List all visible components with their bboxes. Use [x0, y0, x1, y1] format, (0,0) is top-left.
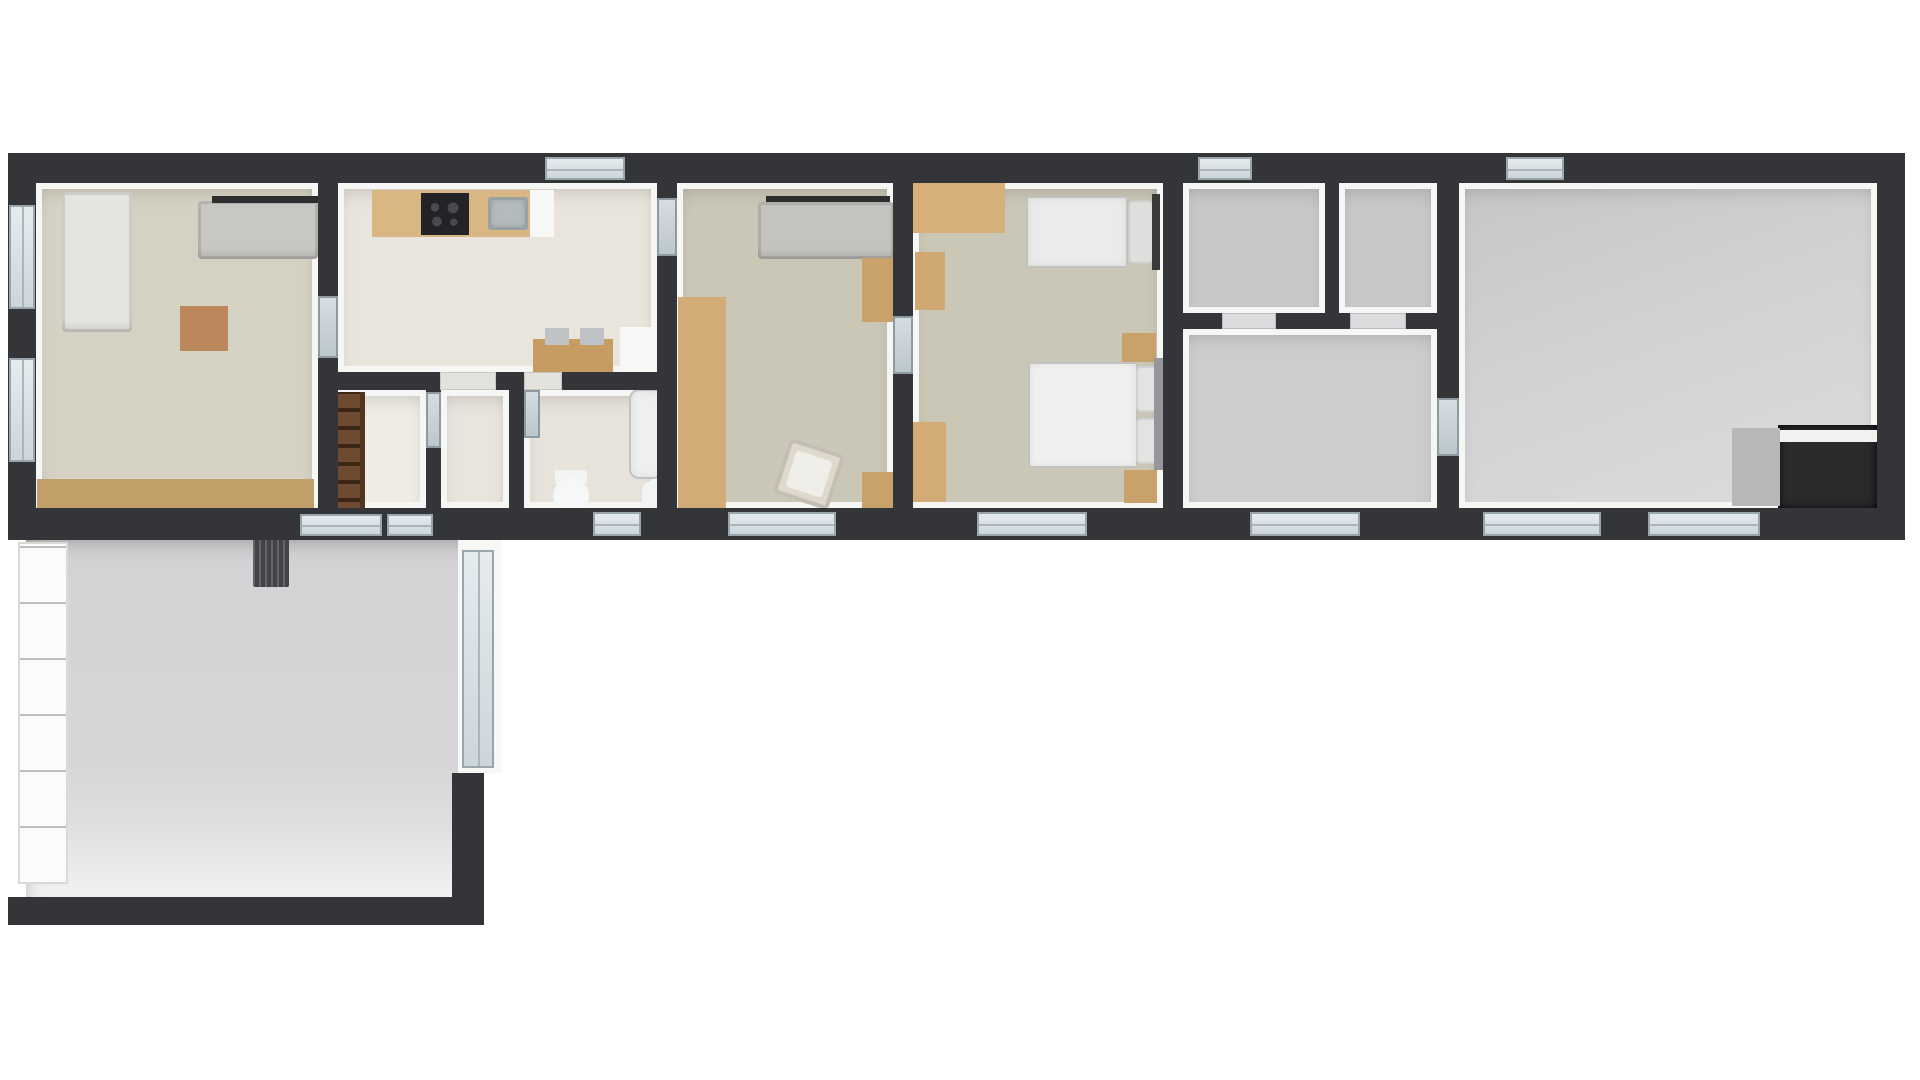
- window-living-left-2: [9, 358, 35, 462]
- bedroom2-desk: [913, 183, 1005, 233]
- outer-wall-top: [8, 153, 1905, 183]
- bedroom1-sofa: [758, 202, 894, 259]
- bedroom2-chair: [915, 252, 945, 310]
- french-window-bedroom1: [728, 512, 836, 536]
- annex-wall-bottom: [8, 897, 460, 925]
- bedroom2-cabinet-left: [908, 422, 946, 502]
- window-grayhall-bottom: [1250, 512, 1360, 536]
- bedroom1-cabinet-top: [862, 258, 893, 322]
- window-annex-link-1: [300, 514, 382, 536]
- french-window-bedroom2: [977, 512, 1087, 536]
- bedroom1-wardrobe: [678, 297, 726, 509]
- window-living-left-1: [9, 205, 35, 309]
- wall-bedroom2-storage: [1163, 183, 1183, 508]
- counter-end-white: [530, 190, 554, 237]
- sofa-top-back-bar: [212, 196, 318, 203]
- wall-storage-bigroom: [1437, 183, 1459, 508]
- storage-room-b-floor: [1339, 183, 1437, 313]
- door-bedroom1-bedroom2: [893, 316, 913, 374]
- window-storage-top: [1198, 157, 1252, 180]
- annex-shelving-unit: [18, 542, 68, 884]
- door-living-kitchen: [318, 296, 338, 358]
- door-leaf-bathroom: [524, 390, 540, 438]
- wall-storage-a-b: [1325, 183, 1339, 313]
- wall-kitchen-hall: [318, 372, 677, 390]
- door-grayhall-bigroom: [1437, 398, 1459, 456]
- window-kitchen-top: [545, 157, 625, 180]
- big-room-alcove-shelf: [1778, 430, 1877, 442]
- annex-wall-step: [452, 773, 484, 925]
- threshold-storage-b: [1350, 313, 1406, 329]
- window-bigroom-bottom-2: [1648, 512, 1760, 536]
- wall-hallway-bathroom: [509, 390, 524, 508]
- storage-room-a-floor: [1183, 183, 1325, 313]
- hallway-floor: [441, 390, 509, 508]
- annex-glass-door: [462, 550, 494, 768]
- window-annex-link-2: [387, 514, 433, 536]
- window-bigroom-top: [1506, 157, 1564, 180]
- bedroom1-cabinet-bottom: [862, 472, 893, 510]
- sofa-top: [198, 201, 318, 259]
- big-room-gray-box: [1732, 428, 1780, 506]
- kitchen-sink: [488, 197, 528, 230]
- door-kitchen-bedroom1: [657, 198, 677, 256]
- window-bathroom-bottom: [593, 512, 641, 536]
- floor-plan-image: [0, 0, 1920, 1080]
- coffee-table: [180, 306, 228, 351]
- wall-storage-hall: [1163, 313, 1459, 329]
- nightstand-top: [1122, 333, 1156, 362]
- threshold-storage-a: [1222, 313, 1276, 329]
- sofa-chaise-left: [62, 192, 132, 332]
- dining-chair-1: [545, 328, 569, 345]
- threshold-kitchen-hallway: [440, 372, 496, 390]
- outer-wall-bottom: [8, 508, 1905, 540]
- nightstand-bottom: [1124, 470, 1157, 503]
- kitchen-appliance: [620, 327, 658, 373]
- single-bed-mattress: [1026, 196, 1128, 268]
- window-bigroom-bottom-1: [1483, 512, 1601, 536]
- cooktop: [421, 193, 469, 235]
- gray-hall-floor: [1183, 329, 1437, 508]
- door-stairs-hallway: [426, 392, 441, 448]
- threshold-bathroom: [524, 372, 562, 390]
- single-bed-headboard: [1152, 194, 1160, 270]
- outer-wall-right: [1877, 183, 1905, 508]
- annex-room-floor: [26, 540, 466, 897]
- double-bed-mattress: [1028, 362, 1138, 468]
- dining-chair-2: [580, 328, 604, 345]
- single-bed-pillow: [1128, 200, 1154, 264]
